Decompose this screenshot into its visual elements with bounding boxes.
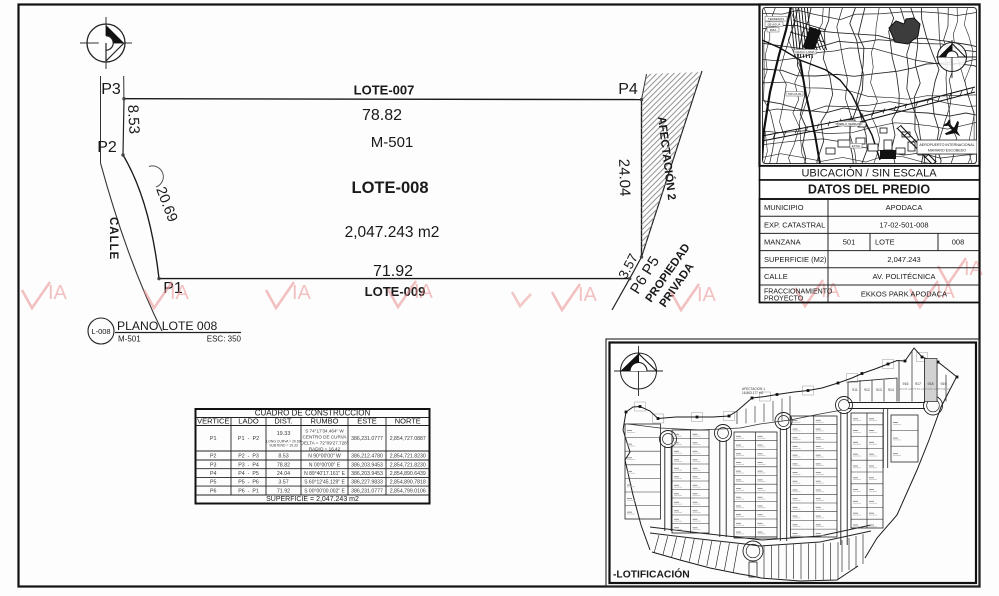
svg-text:LOTE: LOTE <box>875 238 895 247</box>
svg-text:78.82: 78.82 <box>362 107 402 124</box>
svg-text:2,047.243 m2: 2,047.243 m2 <box>345 224 440 241</box>
svg-text:78.82: 78.82 <box>277 462 290 468</box>
svg-text:17-02-501-008: 17-02-501-008 <box>879 220 928 229</box>
svg-text:IA: IA <box>414 281 434 303</box>
svg-text:501: 501 <box>843 238 856 247</box>
svg-text:P3: P3 <box>210 462 217 468</box>
svg-text:IA: IA <box>964 258 984 280</box>
svg-text:RADIO = 16.42: RADIO = 16.42 <box>309 447 341 452</box>
svg-text:24.04: 24.04 <box>277 471 290 477</box>
svg-text:P2 - P3: P2 - P3 <box>238 453 259 459</box>
svg-text:386,203.9453: 386,203.9453 <box>351 471 383 477</box>
svg-text:ESC: 350: ESC: 350 <box>207 335 242 344</box>
svg-text:MUNICIPIO: MUNICIPIO <box>764 203 804 212</box>
svg-text:386,231.0777: 386,231.0777 <box>351 488 383 494</box>
svg-text:P6: P6 <box>210 488 217 494</box>
svg-text:MANZANA: MANZANA <box>764 238 801 247</box>
svg-text:386,231.0777: 386,231.0777 <box>351 436 383 442</box>
svg-text:SUPERFICIE = 2,047.243 m2: SUPERFICIE = 2,047.243 m2 <box>266 496 359 503</box>
svg-text:912: 912 <box>864 388 870 392</box>
svg-text:919: 919 <box>941 382 947 386</box>
svg-text:2,854,890.7818: 2,854,890.7818 <box>390 480 426 486</box>
svg-text:P6 - P1: P6 - P1 <box>238 488 259 494</box>
svg-text:TATLOUIS: TATLOUIS <box>788 92 802 96</box>
svg-text:IA: IA <box>48 282 68 304</box>
svg-text:FRACC LOMA: FRACC LOMA <box>796 50 815 54</box>
svg-text:918: 918 <box>928 382 934 386</box>
svg-text:24.04: 24.04 <box>615 159 633 197</box>
svg-text:P2: P2 <box>97 139 117 156</box>
svg-text:2,854,721.8230: 2,854,721.8230 <box>390 453 426 459</box>
svg-text:M-501: M-501 <box>371 134 414 151</box>
svg-text:2,047.243: 2,047.243 <box>887 255 920 264</box>
svg-text:916: 916 <box>903 382 909 386</box>
svg-text:PLANO LOTE 008: PLANO LOTE 008 <box>117 319 217 333</box>
svg-text:273.53 m2: 273.53 m2 <box>924 387 937 391</box>
svg-text:N 90°00'00" W: N 90°00'00" W <box>308 453 341 459</box>
svg-text:71.92: 71.92 <box>373 263 413 280</box>
svg-text:AV. POLITÉCNICA: AV. POLITÉCNICA <box>873 272 936 281</box>
svg-text:NORTE: NORTE <box>395 417 421 426</box>
svg-text:P1: P1 <box>210 436 217 442</box>
svg-text:EKKOS PARK APODACA: EKKOS PARK APODACA <box>861 289 947 298</box>
svg-text:S 00°00'00.002" E: S 00°00'00.002" E <box>304 488 345 494</box>
svg-text:DATOS DEL PREDIO: DATOS DEL PREDIO <box>808 183 931 197</box>
svg-text:IA: IA <box>292 282 312 304</box>
svg-text:273.53 m2: 273.53 m2 <box>899 387 912 391</box>
svg-text:TERRENOS: TERRENOS <box>768 17 784 21</box>
svg-text:917: 917 <box>915 382 921 386</box>
svg-text:386,227.9833: 386,227.9833 <box>351 480 383 486</box>
svg-text:FRACCIONAMIENTO: FRACCIONAMIENTO <box>764 288 833 295</box>
svg-text:DIST.: DIST. <box>274 417 292 426</box>
svg-text:914: 914 <box>888 388 894 392</box>
svg-text:3.57: 3.57 <box>278 480 288 486</box>
svg-text:IA: IA <box>697 284 717 306</box>
svg-text:P5: P5 <box>210 480 217 486</box>
svg-text:008: 008 <box>952 238 965 247</box>
svg-text:MARIANO ESCOBEDO: MARIANO ESCOBEDO <box>928 149 966 153</box>
svg-text:P5 - P6: P5 - P6 <box>238 480 259 486</box>
svg-text:ESTE: ESTE <box>357 417 377 426</box>
svg-text:-LOTIFICACIÓN: -LOTIFICACIÓN <box>613 568 690 581</box>
svg-text:913: 913 <box>876 388 882 392</box>
svg-text:PROYECTO: PROYECTO <box>764 295 804 302</box>
svg-text:DE AGUA: DE AGUA <box>768 23 781 27</box>
svg-text:P3 - P4: P3 - P4 <box>238 462 259 468</box>
svg-text:S 74°17'34.464" W: S 74°17'34.464" W <box>305 429 344 434</box>
svg-text:M-501: M-501 <box>118 335 141 344</box>
svg-text:DELTA = 72°09'27.728": DELTA = 72°09'27.728" <box>301 441 349 446</box>
svg-text:P4 - P5: P4 - P5 <box>238 471 259 477</box>
svg-text:911: 911 <box>852 388 858 392</box>
svg-text:LOTE-008: LOTE-008 <box>351 179 428 197</box>
svg-text:L-008: L-008 <box>91 327 110 336</box>
svg-text:AEROPUERTO INTERNACIONAL: AEROPUERTO INTERNACIONAL <box>919 143 974 147</box>
svg-text:VERTICE: VERTICE <box>197 417 229 426</box>
svg-text:LOTE-007: LOTE-007 <box>354 83 415 98</box>
svg-text:16,863.177 m2: 16,863.177 m2 <box>742 391 763 395</box>
svg-text:IA: IA <box>170 282 190 304</box>
svg-text:P4: P4 <box>210 471 217 477</box>
svg-text:19.33: 19.33 <box>277 431 291 437</box>
svg-text:N 00°00'00" E: N 00°00'00" E <box>309 462 341 468</box>
svg-text:CENTRO DE CURVA: CENTRO DE CURVA <box>303 435 348 440</box>
svg-text:FRIA: FRIA <box>770 28 777 32</box>
svg-text:2,854,721.8230: 2,854,721.8230 <box>390 462 426 468</box>
svg-text:273.53 m2: 273.53 m2 <box>937 387 950 391</box>
svg-text:ETIVA: ETIVA <box>852 144 860 148</box>
svg-text:386,212.4780: 386,212.4780 <box>351 453 383 459</box>
svg-text:8.53: 8.53 <box>278 453 288 459</box>
svg-text:P4: P4 <box>618 81 638 98</box>
svg-text:EXP. CATASTRAL: EXP. CATASTRAL <box>764 220 825 229</box>
svg-text:LADO: LADO <box>238 417 259 426</box>
svg-text:CALLE: CALLE <box>764 272 788 281</box>
svg-text:P3: P3 <box>101 81 121 98</box>
svg-text:RUMBO: RUMBO <box>311 417 339 426</box>
svg-text:2,854,727.0887: 2,854,727.0887 <box>390 436 426 442</box>
svg-text:S 60°12'45.129" E: S 60°12'45.129" E <box>304 480 345 486</box>
svg-text:PUEBLO SERRANO: PUEBLO SERRANO <box>836 122 864 126</box>
svg-text:IA: IA <box>578 284 598 306</box>
svg-text:UBICACIÓN / SIN ESCALA: UBICACIÓN / SIN ESCALA <box>801 167 937 180</box>
svg-text:2,854,799.0106: 2,854,799.0106 <box>390 488 426 494</box>
svg-text:P2: P2 <box>210 453 217 459</box>
svg-text:N 89°40'17.161" E: N 89°40'17.161" E <box>304 471 346 477</box>
svg-text:SUPERFICIE (M2): SUPERFICIE (M2) <box>764 255 827 264</box>
svg-text:386,203.9453: 386,203.9453 <box>351 462 383 468</box>
svg-text:CALLE: CALLE <box>107 217 119 260</box>
svg-text:8.53: 8.53 <box>124 104 143 134</box>
svg-text:P1 - P2: P1 - P2 <box>238 436 259 442</box>
svg-text:SUBTEND = 19.33: SUBTEND = 19.33 <box>269 444 298 448</box>
svg-text:273.53 m2: 273.53 m2 <box>912 387 925 391</box>
svg-text:71.92: 71.92 <box>277 488 290 494</box>
svg-text:APODACA: APODACA <box>886 203 923 212</box>
svg-text:2,854,890.6439: 2,854,890.6439 <box>390 471 426 477</box>
